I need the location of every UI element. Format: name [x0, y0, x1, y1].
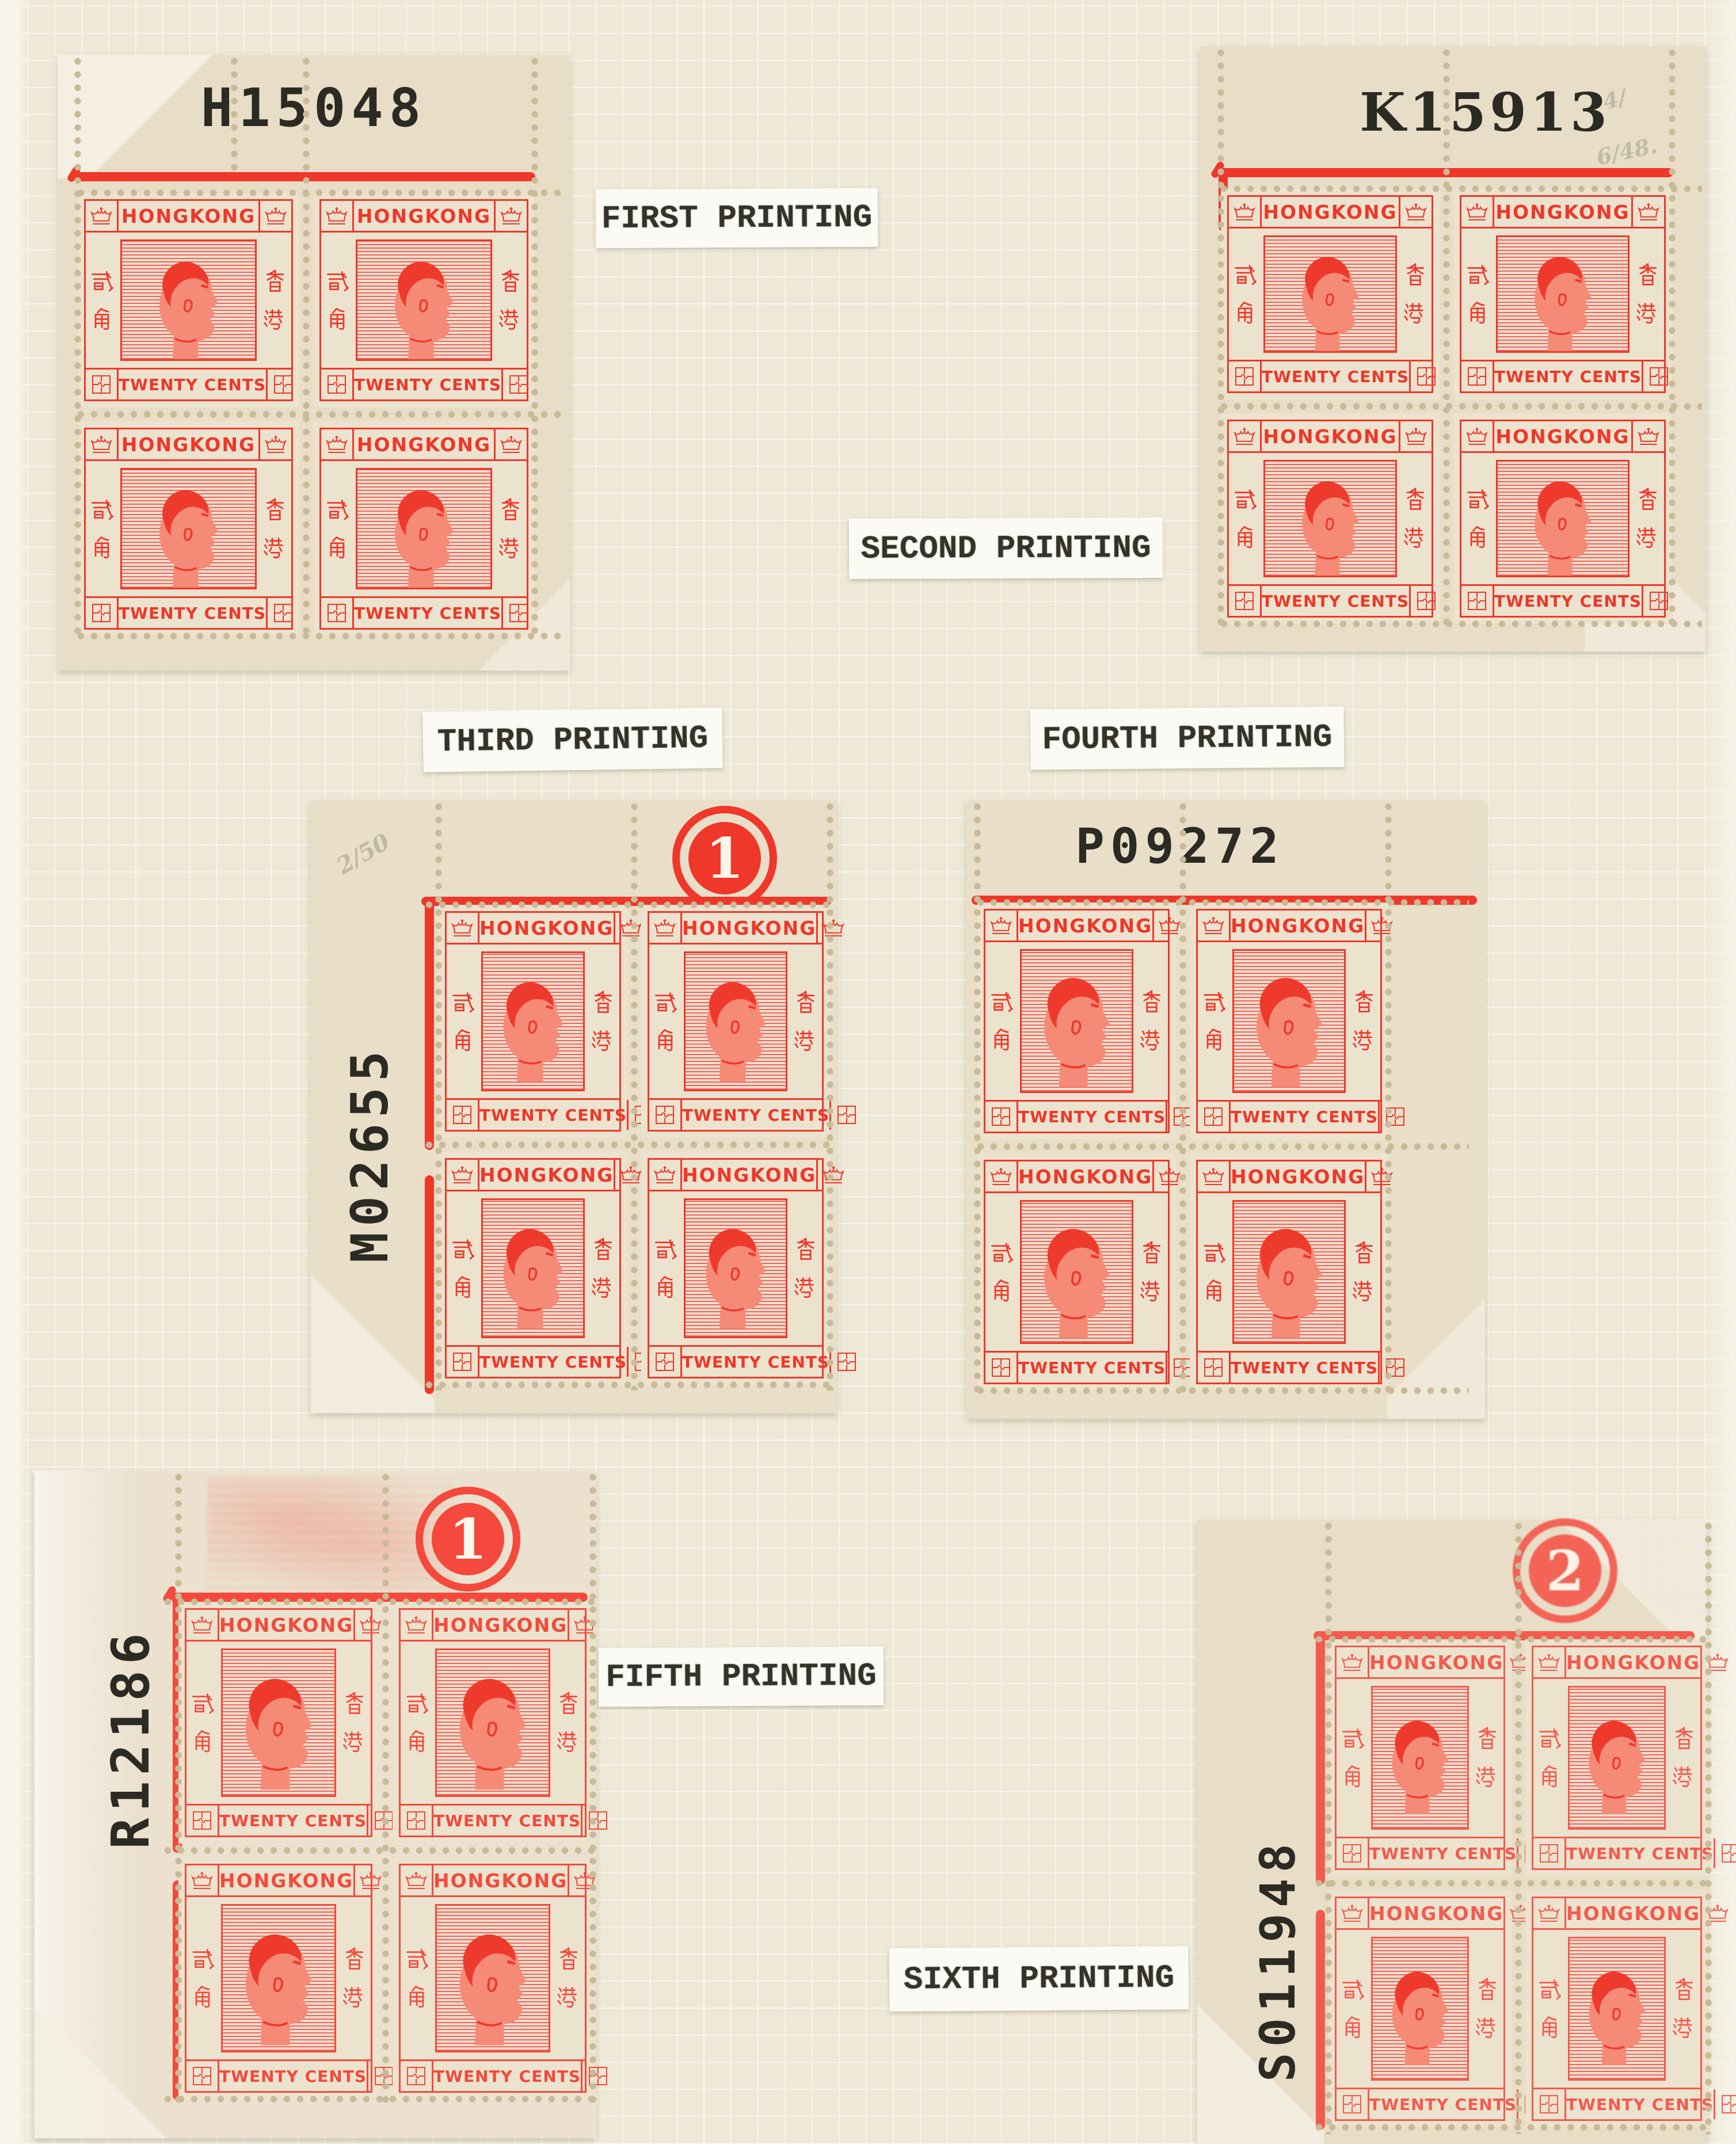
chinese-value-characters [1533, 1679, 1566, 1837]
stamp: HONGKONG TWENTY CENTS [641, 1152, 830, 1385]
crown-icon [816, 1160, 849, 1190]
stamp-country-text: HONGKONG [1262, 197, 1399, 227]
stamp-country-text: HONGKONG [1369, 1647, 1503, 1677]
greek-fret-icon [1642, 361, 1674, 391]
selvedge-fold-corner [1387, 1275, 1485, 1419]
stamp-frame: HONGKONG TWENTY CENTS [984, 909, 1170, 1133]
stamp-block-2x2: HONGKONG TWENTY CENTS [1221, 189, 1672, 624]
stamp: HONGKONG TWENTY CENTS [439, 905, 627, 1138]
greek-fret-icon [86, 598, 119, 628]
chinese-hongkong-characters [790, 945, 822, 1098]
stamp-country-text: HONGKONG [479, 1160, 614, 1190]
chinese-char-xiang-icon [1635, 261, 1661, 290]
stamp-denomination-text: TWENTY CENTS [1494, 361, 1642, 391]
chinese-char-xiang-icon [342, 1945, 367, 1974]
stamp-frame: HONGKONG TWENTY CENTS [1532, 1897, 1702, 2121]
chinese-hongkong-characters [587, 945, 619, 1098]
chinese-value-characters [447, 1191, 479, 1345]
stamp-denomination-text: TWENTY CENTS [1566, 1838, 1714, 1868]
stamp-country-text: HONGKONG [433, 1610, 568, 1640]
chinese-hongkong-characters [338, 1642, 371, 1804]
greek-fret-icon [829, 1347, 862, 1377]
chinese-char-er-icon [190, 1945, 215, 1974]
chinese-char-xiang-icon [342, 1689, 367, 1718]
crown-icon [1700, 1647, 1733, 1677]
label-third-printing: THIRD PRINTING [422, 707, 722, 772]
chinese-char-jiao-icon [1465, 299, 1490, 327]
chinese-char-gang-icon [1475, 2013, 1500, 2042]
chinese-char-er-icon [404, 1689, 429, 1718]
stamp: HONGKONG TWENTY CENTS [1453, 413, 1672, 624]
king-george-vi-profile-icon [1263, 460, 1397, 577]
chinese-value-characters [1533, 1930, 1566, 2088]
perforation-line [1512, 1520, 1525, 2134]
stamp-denomination-text: TWENTY CENTS [682, 1100, 829, 1130]
chinese-char-jiao-icon [989, 1277, 1014, 1305]
king-george-vi-profile-icon [1232, 949, 1346, 1093]
stamp-frame: HONGKONG TWENTY CENTS [319, 199, 528, 401]
chinese-hongkong-characters [1399, 453, 1432, 584]
stamp-country-text: HONGKONG [219, 1865, 353, 1895]
chinese-char-xiang-icon [498, 496, 523, 524]
chinese-char-jiao-icon [190, 1983, 215, 2012]
chinese-char-gang-icon [342, 1983, 367, 2012]
king-george-vi-profile-icon [221, 1904, 336, 2052]
king-george-vi-profile-icon [481, 951, 585, 1091]
chinese-char-xiang-icon [1352, 1239, 1377, 1267]
greek-fret-icon [321, 370, 354, 399]
stamp: HONGKONG TWENTY CENTS [1190, 1153, 1388, 1391]
stamp-frame: HONGKONG TWENTY CENTS [399, 1864, 587, 2093]
greek-fret-icon [1461, 586, 1494, 616]
chinese-char-er-icon [1340, 1724, 1365, 1753]
stamp-block-2x2: HONGKONG TWENTY CENTS [178, 1602, 593, 2099]
king-george-vi-profile-icon [435, 1904, 550, 2052]
chinese-char-gang-icon [793, 1026, 818, 1055]
chinese-char-er-icon [1465, 261, 1490, 290]
greek-fret-icon [1409, 586, 1442, 616]
chinese-hongkong-characters [1348, 942, 1380, 1100]
chinese-char-jiao-icon [1201, 1277, 1227, 1305]
chinese-char-er-icon [450, 988, 475, 1017]
stamp-frame: HONGKONG TWENTY CENTS [445, 911, 621, 1132]
crown-icon [568, 1865, 600, 1895]
crown-icon [1365, 1162, 1398, 1191]
chinese-hongkong-characters [587, 1191, 619, 1345]
greek-fret-icon [447, 1100, 479, 1130]
chinese-value-characters [1229, 453, 1261, 584]
stamp-frame: HONGKONG TWENTY CENTS [1532, 1646, 1702, 1870]
greek-fret-icon [1714, 2089, 1736, 2119]
crown-icon [1700, 1898, 1733, 1928]
chinese-char-xiang-icon [556, 1689, 581, 1718]
stamp-frame: HONGKONG TWENTY CENTS [1227, 195, 1433, 393]
stamp: HONGKONG TWENTY CENTS [78, 421, 299, 636]
stamp-denomination-text: TWENTY CENTS [219, 1806, 367, 1835]
chinese-char-er-icon [1232, 485, 1258, 514]
stamp-denomination-text: TWENTY CENTS [1018, 1102, 1166, 1132]
stamp-denomination-text: TWENTY CENTS [1018, 1353, 1166, 1383]
stamp: HONGKONG TWENTY CENTS [1190, 902, 1388, 1140]
jubilee-line [425, 897, 434, 1150]
perforation-line [1217, 400, 1702, 413]
crown-icon [985, 911, 1018, 940]
chinese-char-jiao-icon [1340, 2013, 1365, 2042]
chinese-char-gang-icon [262, 305, 288, 334]
king-george-vi-profile-icon [1371, 1686, 1469, 1830]
chinese-hongkong-characters [1136, 1193, 1168, 1351]
crown-icon [568, 1610, 600, 1640]
king-george-vi-profile-icon [1496, 460, 1630, 577]
crown-icon [447, 913, 479, 943]
plate-number-disc: 1 [672, 806, 777, 911]
perforation-line [422, 1138, 835, 1151]
king-george-vi-profile-icon [1568, 1686, 1666, 1830]
chinese-char-er-icon [653, 1235, 678, 1264]
crown-icon [258, 201, 291, 231]
chinese-char-er-icon [450, 1235, 475, 1264]
stamp: HONGKONG TWENTY CENTS [1221, 413, 1440, 624]
label-text: FOURTH PRINTING [1042, 718, 1333, 757]
stamp-block-fourth-printing: P09272 HONGKONG [967, 800, 1485, 1419]
crown-icon [86, 429, 119, 459]
crown-icon [86, 201, 119, 231]
stamp: HONGKONG TWENTY CENTS [393, 1857, 593, 2099]
perforation-line [974, 1140, 1469, 1153]
chinese-char-jiao-icon [450, 1026, 475, 1055]
greek-fret-icon [266, 370, 299, 399]
stamp: HONGKONG TWENTY CENTS [1221, 189, 1440, 399]
stamp-block-2x2: HONGKONG TWENTY CENTS [1328, 1639, 1708, 2127]
chinese-value-characters [1337, 1930, 1369, 2088]
king-george-vi-profile-icon [1371, 1937, 1469, 2081]
chinese-char-gang-icon [1352, 1277, 1377, 1305]
stamp: HONGKONG TWENTY CENTS [641, 905, 830, 1138]
king-george-vi-profile-icon [684, 1198, 787, 1338]
label-second-printing: SECOND PRINTING [849, 517, 1163, 579]
chinese-char-xiang-icon [1635, 485, 1661, 514]
chinese-char-jiao-icon [653, 1273, 678, 1302]
crown-icon [186, 1610, 219, 1640]
chinese-char-er-icon [989, 988, 1014, 1016]
stamp-country-text: HONGKONG [1231, 911, 1365, 940]
stamp-block-sixth-printing: 2 S011948 HONGKONG [1197, 1520, 1707, 2144]
chinese-char-er-icon [1201, 1239, 1227, 1267]
stamp-frame: HONGKONG TWENTY CENTS [399, 1608, 587, 1837]
stamp-denomination-text: TWENTY CENTS [1262, 361, 1409, 391]
king-george-vi-profile-icon [356, 468, 492, 589]
stamp-country-text: HONGKONG [354, 429, 494, 459]
greek-fret-icon [1229, 361, 1262, 391]
chinese-char-er-icon [89, 496, 115, 524]
chinese-value-characters [401, 1897, 433, 2059]
chinese-char-xiang-icon [498, 267, 523, 296]
crown-icon [1337, 1898, 1369, 1928]
stamp-frame: HONGKONG TWENTY CENTS [1335, 1897, 1505, 2121]
chinese-char-jiao-icon [1340, 1762, 1365, 1791]
jubilee-line [1219, 168, 1673, 177]
chinese-char-xiang-icon [1672, 1724, 1697, 1753]
crown-icon [1198, 1162, 1231, 1191]
chinese-hongkong-characters [1136, 942, 1168, 1100]
chinese-char-jiao-icon [1465, 523, 1490, 552]
chinese-hongkong-characters [1632, 453, 1664, 584]
crown-icon [1631, 421, 1664, 451]
chinese-char-er-icon [190, 1689, 215, 1718]
sheet-number: R12186 [89, 1594, 173, 1882]
chinese-char-gang-icon [1352, 1026, 1377, 1054]
sheet-number: H15048 [199, 67, 429, 148]
stamp: HONGKONG TWENTY CENTS [313, 193, 535, 408]
crown-icon [1461, 197, 1494, 227]
chinese-char-jiao-icon [1232, 299, 1258, 327]
jubilee-line [425, 1175, 434, 1394]
chinese-char-gang-icon [1672, 1762, 1697, 1791]
chinese-char-xiang-icon [1352, 988, 1377, 1016]
stamp-country-text: HONGKONG [1369, 1898, 1503, 1928]
crown-icon [649, 1160, 682, 1190]
label-first-printing: FIRST PRINTING [596, 188, 878, 249]
stamp-denomination-text: TWENTY CENTS [682, 1347, 829, 1377]
stamp-frame: HONGKONG TWENTY CENTS [1335, 1646, 1505, 1870]
chinese-char-er-icon [325, 496, 350, 524]
crown-icon [1365, 911, 1398, 940]
crown-icon [1229, 197, 1262, 227]
chinese-value-characters [649, 1191, 682, 1345]
chinese-hongkong-characters [494, 233, 527, 368]
jubilee-line [75, 172, 535, 181]
stamp-denomination-text: TWENTY CENTS [479, 1347, 627, 1377]
stamp-denomination-text: TWENTY CENTS [354, 370, 501, 399]
chinese-value-characters [1229, 229, 1261, 360]
stamp-denomination-text: TWENTY CENTS [354, 598, 501, 628]
jubilee-line [1316, 1631, 1325, 1884]
chinese-char-gang-icon [1403, 523, 1428, 552]
stamp-country-text: HONGKONG [119, 201, 258, 231]
chinese-char-gang-icon [591, 1273, 616, 1302]
chinese-value-characters [321, 461, 353, 596]
greek-fret-icon [581, 1806, 614, 1835]
chinese-value-characters [985, 942, 1018, 1100]
stamp: HONGKONG TWENTY CENTS [178, 1602, 379, 1844]
greek-fret-icon [829, 1100, 862, 1130]
label-text: THIRD PRINTING [437, 719, 708, 760]
king-george-vi-profile-icon [1232, 1200, 1346, 1344]
crown-icon [649, 913, 682, 943]
stamp: HONGKONG TWENTY CENTS [1328, 1639, 1512, 1876]
chinese-char-gang-icon [498, 534, 523, 562]
chinese-char-xiang-icon [793, 988, 818, 1017]
stamp-denomination-text: TWENTY CENTS [479, 1100, 627, 1130]
chinese-char-gang-icon [1139, 1026, 1164, 1054]
stamp: HONGKONG TWENTY CENTS [1453, 189, 1672, 399]
stamp-block-2x2: HONGKONG TWENTY CENTS [977, 902, 1388, 1391]
crown-icon [321, 201, 354, 231]
chinese-hongkong-characters [1471, 1930, 1503, 2088]
chinese-value-characters [86, 461, 118, 596]
chinese-char-jiao-icon [653, 1026, 678, 1055]
crown-icon [1533, 1647, 1566, 1677]
stamp-denomination-text: TWENTY CENTS [219, 2061, 367, 2091]
stamp: HONGKONG TWENTY CENTS [393, 1602, 593, 1844]
plate-number: 1 [432, 1503, 504, 1575]
label-text: FIRST PRINTING [601, 199, 873, 237]
stamp-frame: HONGKONG TWENTY CENTS [185, 1608, 372, 1837]
greek-fret-icon [1378, 1102, 1411, 1132]
greek-fret-icon [1337, 2089, 1369, 2119]
crown-icon [353, 1610, 386, 1640]
stamp-frame: HONGKONG TWENTY CENTS [84, 428, 293, 630]
stamp-country-text: HONGKONG [479, 913, 614, 943]
sheet-number: P09272 [1059, 806, 1301, 886]
chinese-value-characters [1337, 1679, 1369, 1837]
stamp: HONGKONG TWENTY CENTS [977, 1153, 1176, 1391]
stamp-block-2x2: HONGKONG TWENTY CENTS [439, 905, 830, 1385]
stamp: HONGKONG TWENTY CENTS [1328, 1890, 1512, 2127]
stamp: HONGKONG TWENTY CENTS [313, 421, 535, 636]
greek-fret-icon [1378, 1353, 1411, 1383]
chinese-value-characters [649, 945, 682, 1098]
stamp: HONGKONG TWENTY CENTS [1525, 1639, 1708, 1876]
stamp-country-text: HONGKONG [354, 201, 494, 231]
chinese-char-xiang-icon [1139, 1239, 1164, 1267]
chinese-hongkong-characters [1399, 229, 1432, 360]
stamp-denomination-text: TWENTY CENTS [1369, 1838, 1517, 1868]
stamp-denomination-text: TWENTY CENTS [1231, 1353, 1378, 1383]
crown-icon [816, 913, 849, 943]
chinese-char-er-icon [653, 988, 678, 1017]
greek-fret-icon [985, 1102, 1018, 1132]
crown-icon [1461, 421, 1494, 451]
king-george-vi-profile-icon [221, 1648, 336, 1797]
stamp-frame: HONGKONG TWENTY CENTS [1460, 420, 1666, 618]
greek-fret-icon [266, 598, 299, 628]
chinese-value-characters [321, 233, 353, 368]
chinese-char-er-icon [1465, 485, 1490, 514]
greek-fret-icon [321, 598, 354, 628]
chinese-char-xiang-icon [262, 496, 288, 524]
jubilee-line [170, 1593, 588, 1602]
chinese-value-characters [447, 945, 479, 1098]
plate-number: 1 [688, 822, 761, 894]
crown-icon [1631, 197, 1664, 227]
king-george-vi-profile-icon [120, 239, 257, 361]
album-page-left-edge [0, 0, 26, 2144]
chinese-char-gang-icon [1672, 2013, 1697, 2042]
sheet-number: K15913 [1361, 69, 1609, 155]
crown-icon [1337, 1647, 1369, 1677]
crown-icon [401, 1610, 433, 1640]
stamp-album-page: H15048 HONGKONG [0, 0, 1736, 2144]
greek-fret-icon [401, 2061, 433, 2091]
chinese-char-jiao-icon [404, 1727, 429, 1756]
chinese-char-jiao-icon [325, 305, 350, 334]
chinese-value-characters [1198, 942, 1230, 1100]
chinese-char-jiao-icon [89, 534, 115, 562]
sheet-number: S011948 [1238, 1833, 1318, 2086]
stamp: HONGKONG TWENTY CENTS [1525, 1890, 1708, 2127]
stamp-denomination-text: TWENTY CENTS [119, 370, 266, 399]
chinese-char-er-icon [1537, 1724, 1562, 1753]
crown-icon [1533, 1898, 1566, 1928]
greek-fret-icon [985, 1353, 1018, 1383]
chinese-char-gang-icon [556, 1727, 581, 1756]
chinese-char-jiao-icon [190, 1727, 215, 1756]
chinese-char-gang-icon [342, 1727, 367, 1756]
stamp: HONGKONG TWENTY CENTS [439, 1152, 627, 1385]
king-george-vi-profile-icon [435, 1648, 550, 1797]
stamp-block-first-printing: H15048 HONGKONG [58, 55, 570, 671]
label-text: SIXTH PRINTING [904, 1959, 1175, 1998]
chinese-char-gang-icon [1475, 1762, 1500, 1791]
chinese-char-gang-icon [556, 1983, 581, 2012]
stamp-denomination-text: TWENTY CENTS [1369, 2089, 1517, 2119]
crown-icon [985, 1162, 1018, 1191]
crown-icon [186, 1865, 219, 1895]
crown-icon [401, 1865, 433, 1895]
chinese-hongkong-characters [553, 1642, 585, 1804]
stamp-frame: HONGKONG TWENTY CENTS [84, 199, 293, 401]
king-george-vi-profile-icon [120, 468, 257, 589]
chinese-char-gang-icon [591, 1026, 616, 1055]
chinese-char-xiang-icon [262, 267, 288, 296]
stamp: HONGKONG TWENTY CENTS [977, 902, 1176, 1140]
greek-fret-icon [1714, 1838, 1736, 1868]
greek-fret-icon [1642, 586, 1674, 616]
chinese-char-xiang-icon [1139, 988, 1164, 1016]
stamp-block-2x2: HONGKONG TWENTY CENTS [78, 193, 535, 636]
crown-icon [494, 201, 527, 231]
perforation-line [379, 1471, 392, 2106]
label-text: SECOND PRINTING [861, 530, 1151, 568]
chinese-value-characters [186, 1897, 219, 2059]
crown-icon [321, 429, 354, 459]
chinese-char-er-icon [89, 267, 115, 296]
chinese-char-jiao-icon [325, 534, 350, 562]
perforation-line [74, 408, 566, 421]
chinese-char-er-icon [404, 1945, 429, 1974]
crown-icon [1229, 421, 1262, 451]
stamp: HONGKONG TWENTY CENTS [78, 193, 299, 408]
king-george-vi-profile-icon [684, 951, 787, 1091]
chinese-char-xiang-icon [591, 1235, 616, 1264]
chinese-char-xiang-icon [556, 1945, 581, 1974]
crown-icon [1399, 197, 1432, 227]
greek-fret-icon [1409, 361, 1442, 391]
stamp-frame: HONGKONG TWENTY CENTS [1196, 1160, 1382, 1384]
chinese-hongkong-characters [553, 1897, 585, 2059]
stamp-frame: HONGKONG TWENTY CENTS [648, 1158, 824, 1378]
stamp-country-text: HONGKONG [1018, 1162, 1152, 1191]
king-george-vi-profile-icon [1496, 235, 1630, 353]
chinese-char-er-icon [1340, 1975, 1365, 2004]
king-george-vi-profile-icon [481, 1198, 585, 1338]
chinese-hongkong-characters [494, 461, 527, 596]
chinese-hongkong-characters [790, 1191, 822, 1345]
stamp-block-second-printing: K15913 4/ 6/48. HONGKONG [1200, 46, 1705, 652]
chinese-hongkong-characters [1632, 229, 1664, 360]
stamp-country-text: HONGKONG [1566, 1647, 1700, 1677]
chinese-char-jiao-icon [1537, 2013, 1562, 2042]
chinese-char-jiao-icon [989, 1026, 1014, 1054]
king-george-vi-profile-icon [1020, 1200, 1133, 1344]
perforation-line [1312, 1877, 1713, 1890]
crown-icon [1152, 1162, 1185, 1191]
stamp-frame: HONGKONG TWENTY CENTS [445, 1158, 621, 1378]
chinese-value-characters [1198, 1193, 1230, 1351]
chinese-char-jiao-icon [1537, 1762, 1562, 1791]
chinese-hongkong-characters [1348, 1193, 1380, 1351]
